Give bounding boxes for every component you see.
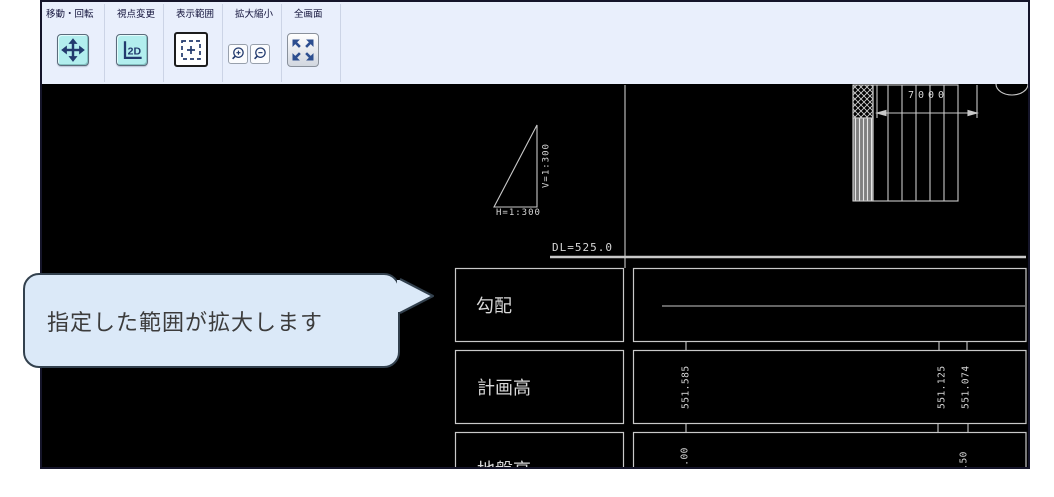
plan-height-value: 551.125 [936, 354, 948, 421]
expand-arrows-icon [289, 36, 317, 64]
toolbar-separator [163, 4, 164, 82]
zoom-in-button[interactable] [228, 44, 248, 64]
wall-structure [853, 85, 958, 201]
scale-triangle [494, 125, 537, 207]
ground-height-value: 2.00 [679, 437, 691, 467]
table-row-label-plan-height: 計画高 [456, 351, 623, 423]
plan-height-value: 551.074 [960, 354, 972, 421]
group-label-zoom: 拡大縮小 [235, 6, 273, 20]
toolbar-separator [222, 4, 223, 82]
magnifier-minus-icon [251, 45, 269, 63]
toolbar: 移動・回転 視点変更 表示範囲 拡大縮小 全画面 [42, 2, 1028, 84]
display-range-button[interactable] [174, 32, 208, 67]
group-label-display-range: 表示範囲 [176, 6, 214, 20]
fullscreen-button[interactable] [287, 33, 319, 67]
ground-height-value: 1.50 [958, 441, 970, 467]
table-row-label-gradient: 勾配 [456, 269, 623, 341]
move-arrows-icon [59, 36, 87, 64]
tooltip-tail [397, 272, 441, 318]
toolbar-separator [104, 4, 105, 82]
arc-detail [996, 84, 1028, 95]
axis-2d-icon: 2D [118, 36, 146, 64]
move-rotate-button[interactable] [57, 34, 89, 66]
cad-window: 移動・回転 視点変更 表示範囲 拡大縮小 全画面 [40, 0, 1030, 469]
view-2d-button[interactable]: 2D [116, 34, 148, 66]
dimension-label: 7000 [908, 91, 948, 101]
scale-h-label: H=1:300 [496, 209, 541, 218]
group-label-view-change: 視点変更 [117, 6, 155, 20]
magnifier-plus-icon [229, 45, 247, 63]
axis-2d-text: 2D [128, 45, 142, 57]
table-row-label-ground-height: 地盤高 [456, 433, 623, 467]
datum-label: DL=525.0 [552, 242, 613, 253]
range-select-icon [176, 35, 206, 65]
app-screenshot: 移動・回転 視点変更 表示範囲 拡大縮小 全画面 [0, 0, 1054, 497]
group-label-move-rotate: 移動・回転 [46, 6, 94, 20]
zoom-out-button[interactable] [250, 44, 270, 64]
tooltip-bubble: 指定した範囲が拡大します [23, 273, 400, 368]
scale-v-label: V=1:300 [541, 140, 553, 192]
plan-height-value: 551.585 [680, 354, 692, 421]
tooltip-text: 指定した範囲が拡大します [47, 305, 323, 337]
toolbar-separator [340, 4, 341, 82]
group-label-fullscreen: 全画面 [294, 6, 323, 20]
station-ticks [686, 341, 968, 433]
toolbar-separator [281, 4, 282, 82]
